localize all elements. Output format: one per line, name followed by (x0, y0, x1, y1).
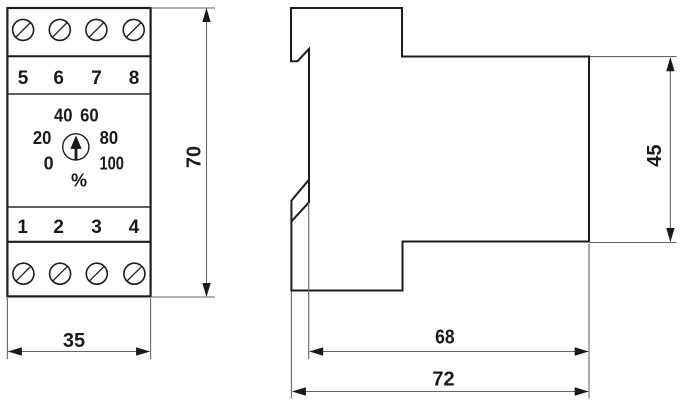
svg-text:0: 0 (44, 154, 54, 174)
svg-text:%: % (71, 171, 87, 191)
svg-text:35: 35 (63, 330, 85, 352)
svg-text:8: 8 (129, 68, 140, 89)
svg-text:6: 6 (53, 68, 64, 89)
svg-text:7: 7 (91, 68, 102, 89)
svg-text:60: 60 (80, 105, 99, 125)
svg-text:68: 68 (435, 327, 455, 349)
svg-text:40: 40 (54, 105, 73, 125)
svg-text:20: 20 (33, 128, 52, 148)
svg-text:1: 1 (17, 217, 28, 238)
svg-text:70: 70 (183, 146, 205, 168)
svg-text:2: 2 (53, 217, 64, 238)
svg-text:5: 5 (18, 68, 29, 89)
svg-text:100: 100 (99, 154, 124, 174)
svg-text:72: 72 (432, 368, 454, 390)
svg-text:4: 4 (129, 217, 140, 238)
svg-text:45: 45 (644, 144, 666, 166)
svg-text:80: 80 (100, 128, 119, 148)
svg-text:3: 3 (91, 217, 102, 238)
